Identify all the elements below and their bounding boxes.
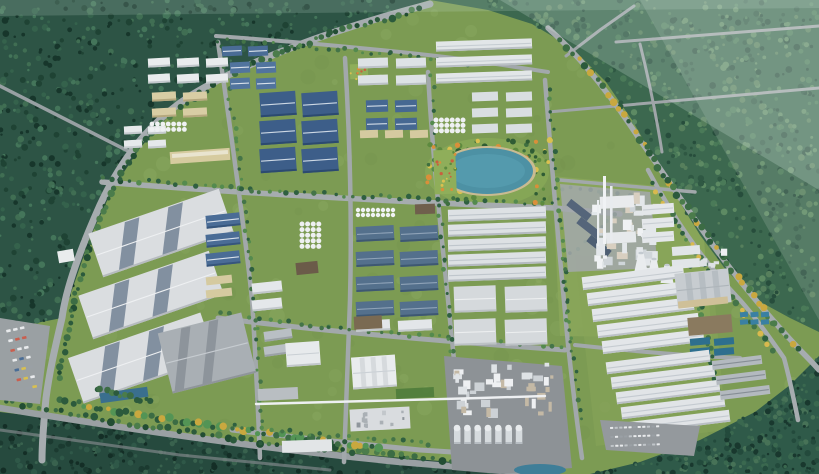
north-beige-row (360, 130, 428, 139)
plant-chimney-1 (603, 176, 606, 244)
low-white-slab (282, 439, 332, 453)
se-darkroof-halls (712, 355, 771, 400)
gray-service-building (258, 387, 299, 401)
midwest-blue-halls (205, 212, 240, 266)
central-white-hall-2 (351, 355, 397, 390)
brown-utility-building (354, 315, 383, 329)
garden-lakeside (433, 150, 457, 195)
flat-roof-utility-plant (349, 406, 410, 431)
midwest-darkroof-house (295, 261, 318, 275)
north-long-slabs (436, 38, 532, 83)
central-white-hall-1 (285, 341, 321, 367)
lake-water-highlight (449, 154, 525, 188)
industrial-park-render (0, 0, 819, 474)
crop-field (396, 387, 434, 399)
plant-east-halls (642, 203, 675, 243)
se-parking-lot (600, 420, 700, 456)
water-treatment-pad (687, 314, 732, 336)
plant-chimney-3 (597, 200, 599, 246)
substation-building (415, 204, 435, 215)
east-central-long-halls (448, 206, 546, 281)
plant-chimney-2 (610, 186, 613, 242)
aerial-scene-canvas (0, 0, 819, 474)
